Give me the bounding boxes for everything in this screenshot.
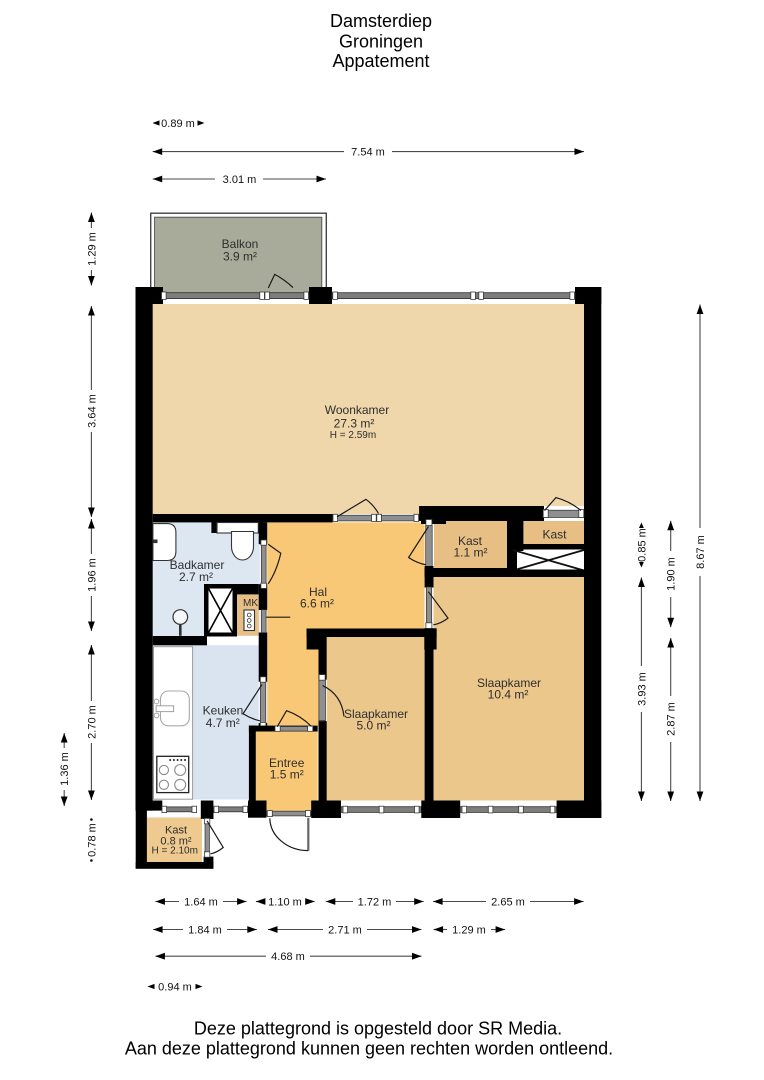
svg-text:3.9 m²: 3.9 m²: [223, 250, 257, 264]
svg-text:1.84 m: 1.84 m: [188, 925, 222, 937]
svg-text:1.1 m²: 1.1 m²: [453, 546, 487, 560]
svg-text:1.5 m²: 1.5 m²: [270, 768, 304, 782]
svg-text:3.01 m: 3.01 m: [223, 174, 257, 186]
svg-text:1.72 m: 1.72 m: [358, 897, 392, 909]
svg-text:1.64 m: 1.64 m: [184, 897, 218, 909]
svg-text:8.67 m: 8.67 m: [695, 535, 707, 569]
svg-text:0.78 m: 0.78 m: [86, 823, 98, 857]
svg-text:H = 2.59m: H = 2.59m: [330, 430, 376, 441]
svg-text:2.65 m: 2.65 m: [491, 897, 525, 909]
svg-text:Kast: Kast: [542, 528, 567, 542]
svg-text:0.85 m: 0.85 m: [636, 528, 648, 562]
svg-text:1.10 m: 1.10 m: [268, 897, 302, 909]
svg-text:H = 2.10m: H = 2.10m: [151, 846, 197, 857]
svg-text:7.54 m: 7.54 m: [351, 147, 385, 159]
svg-text:3.93 m: 3.93 m: [636, 672, 648, 706]
svg-text:4.7 m²: 4.7 m²: [206, 716, 240, 730]
svg-text:Groningen: Groningen: [339, 32, 423, 52]
svg-text:Appatement: Appatement: [332, 51, 429, 71]
svg-text:0.89 m: 0.89 m: [161, 118, 195, 130]
svg-text:6.6 m²: 6.6 m²: [300, 597, 334, 611]
svg-text:2.70 m: 2.70 m: [86, 705, 98, 739]
svg-text:2.87 m: 2.87 m: [666, 702, 678, 736]
svg-text:5.0 m²: 5.0 m²: [356, 719, 390, 733]
svg-text:0.94 m: 0.94 m: [158, 982, 192, 994]
svg-text:Woonkamer: Woonkamer: [325, 403, 389, 417]
svg-text:27.3 m²: 27.3 m²: [334, 417, 375, 431]
svg-text:1.96 m: 1.96 m: [86, 558, 98, 592]
svg-text:MK: MK: [243, 598, 258, 609]
svg-text:1.29 m: 1.29 m: [452, 925, 486, 937]
svg-text:1.90 m: 1.90 m: [666, 557, 678, 591]
svg-text:Aan deze plattegrond kunnen ge: Aan deze plattegrond kunnen geen rechten…: [125, 1039, 613, 1059]
svg-text:1.29 m: 1.29 m: [86, 232, 98, 266]
svg-text:10.4 m²: 10.4 m²: [488, 688, 529, 702]
svg-text:2.71 m: 2.71 m: [328, 925, 362, 937]
svg-text:1.36 m: 1.36 m: [59, 752, 71, 786]
svg-text:2.7 m²: 2.7 m²: [179, 570, 213, 584]
svg-text:4.68 m: 4.68 m: [271, 951, 305, 963]
svg-text:Damsterdiep: Damsterdiep: [330, 11, 432, 31]
svg-text:3.64 m: 3.64 m: [86, 394, 98, 428]
svg-text:Deze plattegrond is opgesteld: Deze plattegrond is opgesteld door SR Me…: [194, 1019, 562, 1039]
